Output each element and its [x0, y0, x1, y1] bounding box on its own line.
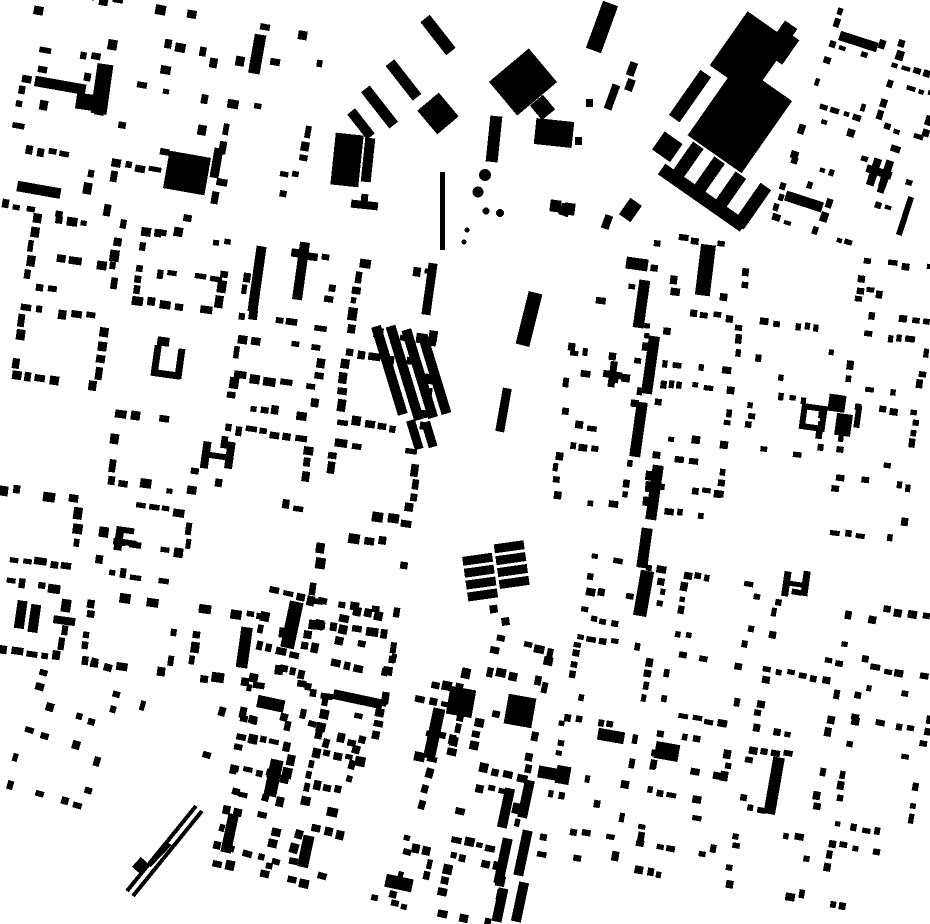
building-footprint [200, 675, 209, 683]
building-footprint [899, 315, 908, 323]
building-footprint [534, 118, 575, 148]
building-footprint [866, 685, 872, 692]
building-footprint [351, 297, 357, 304]
building-footprint [747, 804, 754, 811]
building-footprint [570, 661, 578, 668]
building-footprint [813, 802, 822, 810]
building-footprint [735, 325, 743, 332]
building-footprint [0, 485, 9, 497]
building-footprint [725, 762, 732, 769]
round-tank [473, 187, 484, 198]
building-footprint [316, 358, 326, 369]
building-footprint [557, 740, 564, 747]
building-footprint [183, 214, 192, 222]
building-footprint [655, 871, 661, 878]
building-footprint [197, 124, 207, 136]
building-footprint [352, 625, 363, 633]
building-footprint [879, 405, 887, 412]
building-footprint [569, 828, 577, 836]
building-footprint [570, 350, 579, 356]
building-footprint [319, 709, 330, 720]
building-footprint [251, 337, 261, 346]
building-footprint [670, 288, 680, 297]
building-footprint [895, 723, 902, 731]
building-footprint [66, 217, 78, 227]
building-footprint [682, 733, 688, 740]
building-footprint [901, 263, 910, 271]
building-footprint [694, 572, 702, 579]
building-footprint [587, 425, 597, 432]
building-footprint [586, 99, 593, 107]
building-footprint [850, 823, 857, 831]
building-footprint [838, 902, 846, 910]
building-footprint [677, 509, 683, 516]
building-footprint [719, 293, 728, 301]
building-footprint [24, 372, 32, 382]
building-footprint [324, 826, 334, 836]
building-footprint [621, 374, 630, 383]
building-footprint [337, 387, 347, 395]
building-footprint [835, 821, 841, 827]
building-footprint [351, 415, 361, 426]
building-footprint [608, 352, 616, 360]
building-footprint [773, 728, 781, 736]
building-footprint [854, 691, 862, 699]
building-footprint [0, 645, 7, 655]
building-footprint [400, 520, 412, 529]
building-footprint [329, 622, 337, 631]
building-footprint [568, 343, 576, 351]
building-footprint [109, 261, 116, 269]
building-footprint [889, 408, 898, 416]
building-footprint [26, 255, 36, 267]
building-footprint [315, 557, 326, 569]
building-footprint [734, 663, 743, 671]
building-footprint [888, 335, 894, 343]
building-footprint [755, 354, 762, 362]
building-footprint [761, 676, 770, 684]
building-footprint [647, 867, 655, 876]
building-footprint [748, 746, 758, 755]
building-footprint [96, 354, 106, 363]
building-footprint [410, 493, 418, 502]
building-footprint [346, 348, 354, 356]
building-footprint [303, 630, 312, 639]
building-footprint [593, 800, 601, 809]
building-footprint [118, 121, 127, 129]
building-footprint [717, 479, 725, 487]
building-footprint [15, 329, 25, 341]
building-footprint [73, 538, 80, 547]
building-footprint [321, 254, 329, 261]
building-footprint [130, 410, 140, 420]
building-footprint [783, 833, 789, 840]
building-footprint [644, 333, 650, 339]
building-footprint [190, 641, 200, 653]
building-footprint [39, 100, 49, 111]
building-footprint [404, 502, 414, 512]
building-footprint [96, 260, 107, 270]
building-footprint [52, 650, 61, 660]
building-footprint [146, 598, 159, 608]
building-footprint [691, 435, 701, 444]
building-footprint [88, 380, 97, 391]
building-footprint [653, 240, 660, 247]
building-footprint [111, 158, 122, 168]
building-footprint [692, 487, 699, 495]
building-footprint [660, 588, 666, 595]
building-footprint [562, 377, 569, 387]
building-footprint [768, 631, 776, 639]
building-footprint [598, 638, 607, 646]
building-footprint [896, 334, 902, 342]
building-footprint [235, 56, 246, 67]
building-footprint [170, 628, 177, 636]
building-footprint [310, 398, 319, 408]
building-footprint [719, 469, 725, 476]
building-footprint [754, 709, 762, 716]
building-footprint [748, 625, 755, 632]
building-footprint [713, 311, 721, 318]
building-footprint [668, 436, 675, 442]
building-footprint [852, 845, 859, 851]
building-footprint [856, 287, 864, 294]
building-footprint [491, 768, 500, 777]
building-footprint [740, 794, 748, 802]
building-footprint [725, 315, 733, 323]
building-footprint [676, 381, 682, 389]
building-footprint [908, 438, 915, 448]
building-footprint [75, 93, 99, 112]
building-footprint [109, 569, 116, 575]
building-footprint [795, 323, 801, 331]
building-footprint [841, 641, 848, 647]
building-footprint [113, 237, 122, 246]
building-footprint [702, 487, 711, 493]
building-footprint [591, 445, 599, 452]
building-footprint [690, 237, 699, 245]
building-footprint [683, 572, 692, 581]
building-footprint [690, 309, 698, 317]
building-footprint [56, 254, 66, 263]
building-footprint [311, 344, 321, 351]
building-footprint [220, 271, 229, 279]
building-footprint [174, 42, 186, 53]
building-footprint [80, 220, 87, 226]
building-footprint [426, 730, 433, 737]
building-footprint [741, 640, 748, 648]
building-footprint [250, 406, 257, 412]
building-footprint [147, 297, 156, 306]
building-footprint [107, 39, 118, 51]
building-footprint [672, 362, 682, 369]
building-footprint [292, 171, 300, 178]
building-footprint [160, 65, 172, 75]
building-footprint [216, 280, 227, 294]
building-footprint [670, 275, 678, 284]
building-footprint [912, 419, 919, 426]
building-footprint [689, 458, 699, 465]
building-footprint [504, 694, 537, 728]
building-footprint [315, 722, 326, 733]
building-footprint [572, 649, 580, 657]
building-footprint [803, 855, 810, 862]
building-footprint [539, 833, 547, 841]
building-footprint [334, 636, 344, 646]
building-footprint [726, 386, 735, 394]
building-footprint [823, 862, 831, 871]
building-footprint [68, 494, 79, 503]
building-footprint [575, 715, 582, 723]
building-footprint [660, 380, 667, 389]
building-footprint [868, 615, 877, 624]
building-footprint [923, 348, 929, 357]
building-footprint [812, 791, 821, 801]
building-footprint [817, 444, 824, 452]
building-footprint [861, 655, 869, 663]
building-footprint [890, 389, 896, 396]
building-footprint [351, 286, 361, 294]
building-footprint [656, 600, 663, 607]
building-footprint [450, 852, 457, 859]
building-footprint [894, 669, 904, 678]
building-footprint [38, 582, 46, 589]
building-footprint [282, 499, 290, 509]
building-footprint [775, 669, 782, 676]
building-footprint [72, 523, 83, 535]
building-footprint [246, 611, 254, 618]
building-footprint [587, 500, 593, 506]
building-footprint [627, 460, 633, 467]
building-footprint [845, 375, 851, 382]
building-footprint [553, 476, 560, 483]
building-footprint [686, 632, 692, 638]
building-footprint [910, 803, 917, 809]
building-footprint [608, 500, 618, 508]
building-footprint [501, 617, 510, 626]
building-footprint [224, 239, 231, 245]
building-footprint [732, 833, 739, 840]
building-footprint [301, 471, 310, 482]
building-footprint [643, 669, 652, 677]
building-footprint [174, 303, 183, 311]
building-footprint [95, 555, 104, 564]
building-footprint [303, 446, 314, 456]
building-footprint [380, 629, 388, 639]
building-footprint [133, 285, 141, 295]
building-footprint [742, 268, 750, 277]
building-footprint [692, 382, 698, 388]
building-footprint [159, 415, 170, 423]
building-footprint [562, 407, 570, 415]
building-footprint [259, 735, 267, 743]
building-footprint [760, 446, 767, 452]
building-footprint [338, 372, 348, 384]
building-footprint [60, 562, 71, 570]
building-footprint [328, 284, 336, 292]
building-footprint [97, 341, 107, 352]
building-footprint [723, 749, 732, 759]
building-footprint [591, 615, 598, 622]
building-footprint [371, 511, 383, 522]
building-footprint [50, 561, 59, 569]
building-footprint [759, 317, 768, 325]
building-footprint [570, 442, 576, 450]
map-canvas [0, 0, 930, 924]
building-footprint [724, 420, 731, 426]
building-footprint [872, 848, 880, 855]
building-footprint [657, 578, 665, 586]
building-footprint [301, 642, 309, 650]
building-footprint [154, 4, 166, 16]
building-footprint [81, 641, 88, 649]
building-footprint [809, 675, 817, 683]
building-footprint [107, 476, 115, 486]
building-footprint [883, 605, 891, 613]
building-footprint [813, 324, 819, 332]
building-footprint [354, 756, 366, 768]
building-footprint [315, 542, 325, 554]
building-footprint [73, 507, 83, 520]
building-footprint [18, 578, 26, 589]
building-footprint [564, 714, 572, 722]
building-footprint [134, 275, 142, 283]
building-footprint [387, 513, 399, 524]
building-footprint [634, 865, 644, 874]
building-footprint [291, 341, 300, 348]
building-footprint [846, 741, 853, 748]
building-footprint [652, 451, 661, 459]
building-footprint [887, 534, 893, 542]
building-footprint [741, 282, 748, 289]
building-footprint [656, 730, 664, 738]
building-footprint [747, 402, 753, 408]
building-footprint [558, 720, 565, 726]
building-footprint [722, 366, 732, 374]
building-footprint [585, 587, 596, 596]
building-footprint [622, 491, 628, 498]
building-footprint [33, 5, 44, 15]
building-footprint [893, 609, 902, 618]
building-footprint [575, 137, 582, 145]
building-footprint [827, 394, 846, 413]
building-footprint [86, 610, 95, 618]
building-footprint [58, 309, 67, 319]
building-footprint [297, 30, 307, 40]
building-footprint [36, 305, 43, 313]
building-footprint [910, 409, 917, 415]
building-footprint [229, 377, 240, 390]
building-footprint [99, 327, 109, 338]
building-footprint [328, 452, 338, 460]
building-footprint [190, 467, 199, 474]
building-footprint [789, 395, 796, 401]
building-footprint [157, 269, 164, 279]
building-footprint [314, 372, 324, 380]
building-footprint [875, 290, 883, 298]
building-footprint [599, 618, 607, 625]
building-footprint [745, 421, 752, 428]
building-footprint [831, 485, 839, 492]
building-footprint [896, 481, 902, 489]
building-footprint [836, 781, 845, 791]
building-footprint [35, 284, 43, 292]
building-footprint [656, 789, 664, 797]
building-footprint [269, 431, 279, 439]
building-footprint [139, 242, 146, 251]
building-footprint [700, 312, 709, 319]
building-footprint [611, 620, 619, 627]
building-footprint [48, 285, 58, 292]
building-footprint [508, 672, 518, 682]
building-footprint [173, 227, 184, 238]
building-footprint [13, 485, 21, 494]
building-footprint [784, 731, 791, 737]
building-footprint [186, 485, 197, 495]
building-footprint [373, 611, 384, 622]
building-footprint [828, 840, 837, 849]
building-footprint [582, 348, 588, 356]
building-footprint [440, 172, 445, 250]
building-footprint [440, 876, 449, 885]
building-footprint [836, 474, 845, 481]
building-footprint [259, 611, 270, 622]
building-footprint [692, 735, 701, 743]
building-footprint [578, 444, 588, 452]
building-footprint [865, 387, 874, 393]
round-tank [496, 209, 504, 217]
building-footprint [80, 51, 87, 59]
building-footprint [675, 631, 682, 638]
building-footprint [300, 141, 310, 152]
building-footprint [115, 409, 128, 419]
building-footprint [778, 374, 784, 381]
building-footprint [679, 581, 688, 591]
building-footprint [650, 264, 658, 272]
building-footprint [857, 275, 865, 283]
building-footprint [760, 748, 768, 756]
building-footprint [864, 330, 873, 337]
building-footprint [553, 491, 562, 500]
building-footprint [836, 794, 843, 802]
building-footprint [125, 161, 132, 169]
building-footprint [698, 364, 704, 371]
building-footprint [225, 423, 232, 431]
building-footprint [156, 667, 165, 677]
building-footprint [726, 409, 732, 418]
building-footprint [888, 259, 898, 266]
building-footprint [753, 593, 761, 600]
building-footprint [725, 864, 733, 871]
building-footprint [213, 240, 220, 246]
building-footprint [192, 631, 200, 639]
building-footprint [861, 476, 869, 483]
building-footprint [357, 350, 366, 359]
building-footprint [166, 488, 173, 494]
building-footprint [580, 370, 591, 378]
building-footprint [260, 406, 269, 413]
building-footprint [645, 658, 654, 668]
building-footprint [347, 324, 356, 334]
building-footprint [303, 457, 311, 467]
round-tank [462, 240, 467, 245]
building-footprint [334, 438, 348, 448]
building-footprint [32, 213, 42, 224]
building-footprint [136, 265, 144, 273]
building-footprint [49, 375, 59, 385]
building-footprint [86, 599, 95, 608]
building-footprint [793, 451, 802, 457]
